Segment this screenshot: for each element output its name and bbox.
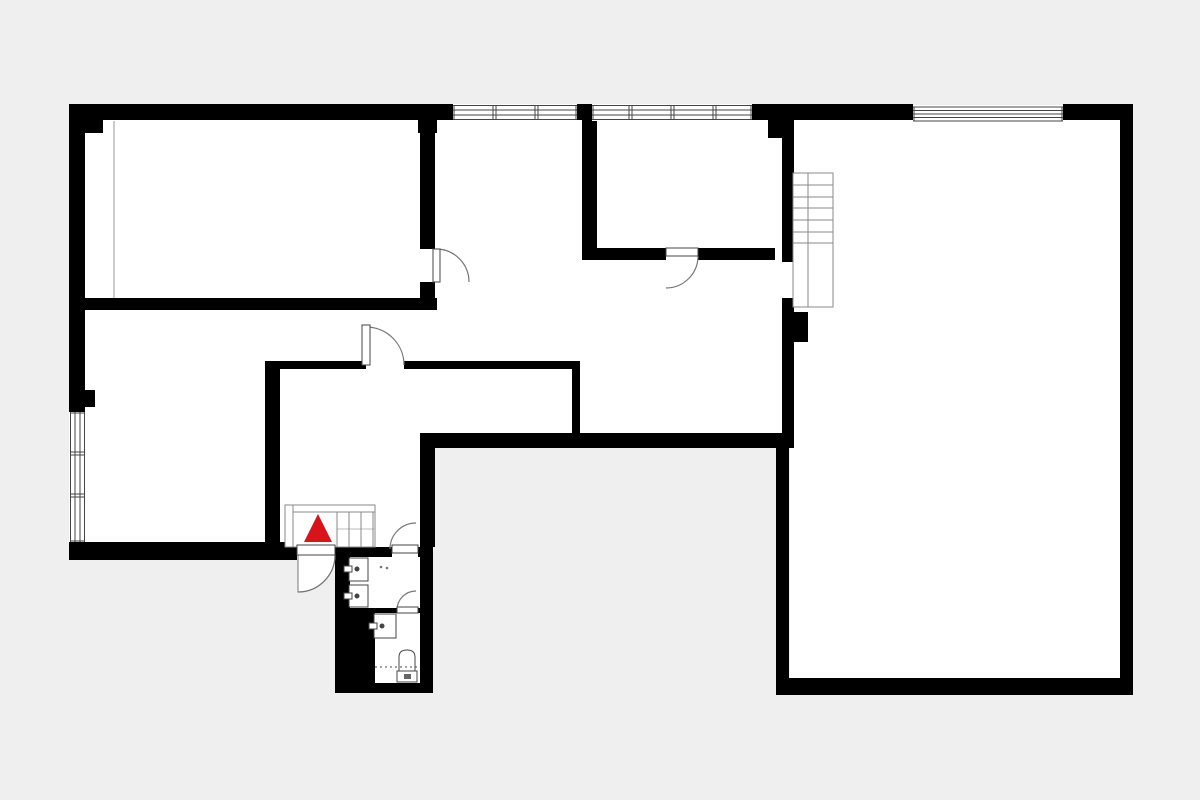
wall-segment (69, 104, 85, 412)
window-top-mid-glass (592, 104, 752, 121)
wall-segment (698, 248, 775, 260)
room-bottom-left-floor (85, 310, 265, 542)
wall-segment (572, 369, 580, 433)
door-leaf (392, 545, 418, 553)
sink-drain (380, 624, 385, 629)
window-top-mid (592, 104, 752, 121)
wall-segment (782, 104, 794, 262)
room-top-left-floor (85, 119, 420, 298)
window-room-right (913, 105, 1063, 122)
wall-segment (85, 119, 103, 133)
wall-segment (582, 104, 597, 253)
window-top-left-glass (453, 104, 577, 121)
window-top-left (453, 104, 577, 121)
sink-faucet (369, 623, 377, 629)
staircase-entrance (285, 505, 375, 547)
wall-segment (418, 119, 437, 133)
staircase-main (793, 173, 833, 307)
wall-segment (69, 298, 437, 310)
sink-drain (355, 567, 360, 572)
wall-segment (776, 678, 1133, 695)
floor-drain-dot (380, 566, 383, 569)
floor-plan-page (0, 0, 1200, 800)
hall-upper-floor (280, 369, 580, 433)
floor-plan (0, 0, 1200, 800)
wall-segment (265, 361, 366, 369)
toilet-bowl (399, 650, 415, 672)
door-leaf (362, 325, 370, 365)
wall-segment (69, 542, 297, 560)
window-left-wall (69, 412, 86, 542)
corridor-connector-floor (265, 310, 435, 361)
wall-segment (265, 361, 280, 548)
sink-faucet (344, 566, 352, 572)
wall-segment (83, 390, 95, 407)
wall-segment (69, 104, 453, 120)
door-leaf (297, 545, 335, 555)
door-leaf (666, 248, 698, 256)
room-right-floor (790, 119, 1120, 678)
door-leaf (397, 607, 418, 613)
staircase-main-body (793, 173, 833, 307)
wall-segment (582, 248, 666, 260)
toilet-icon (397, 650, 417, 682)
wall-segment (420, 433, 435, 547)
floor-drain-dot (386, 567, 389, 570)
doorway-hall (366, 361, 404, 369)
wall-segment (404, 361, 580, 369)
sink-drain (355, 594, 360, 599)
door-leaf (433, 249, 440, 282)
wall-segment (422, 433, 794, 448)
toilet-mark (404, 674, 411, 679)
wall-segment (420, 282, 435, 298)
wall-segment (1120, 104, 1133, 695)
wall-segment (788, 312, 808, 342)
window-left-wall-glass (69, 412, 86, 542)
wall-segment (776, 448, 789, 695)
sink-faucet (344, 593, 352, 599)
